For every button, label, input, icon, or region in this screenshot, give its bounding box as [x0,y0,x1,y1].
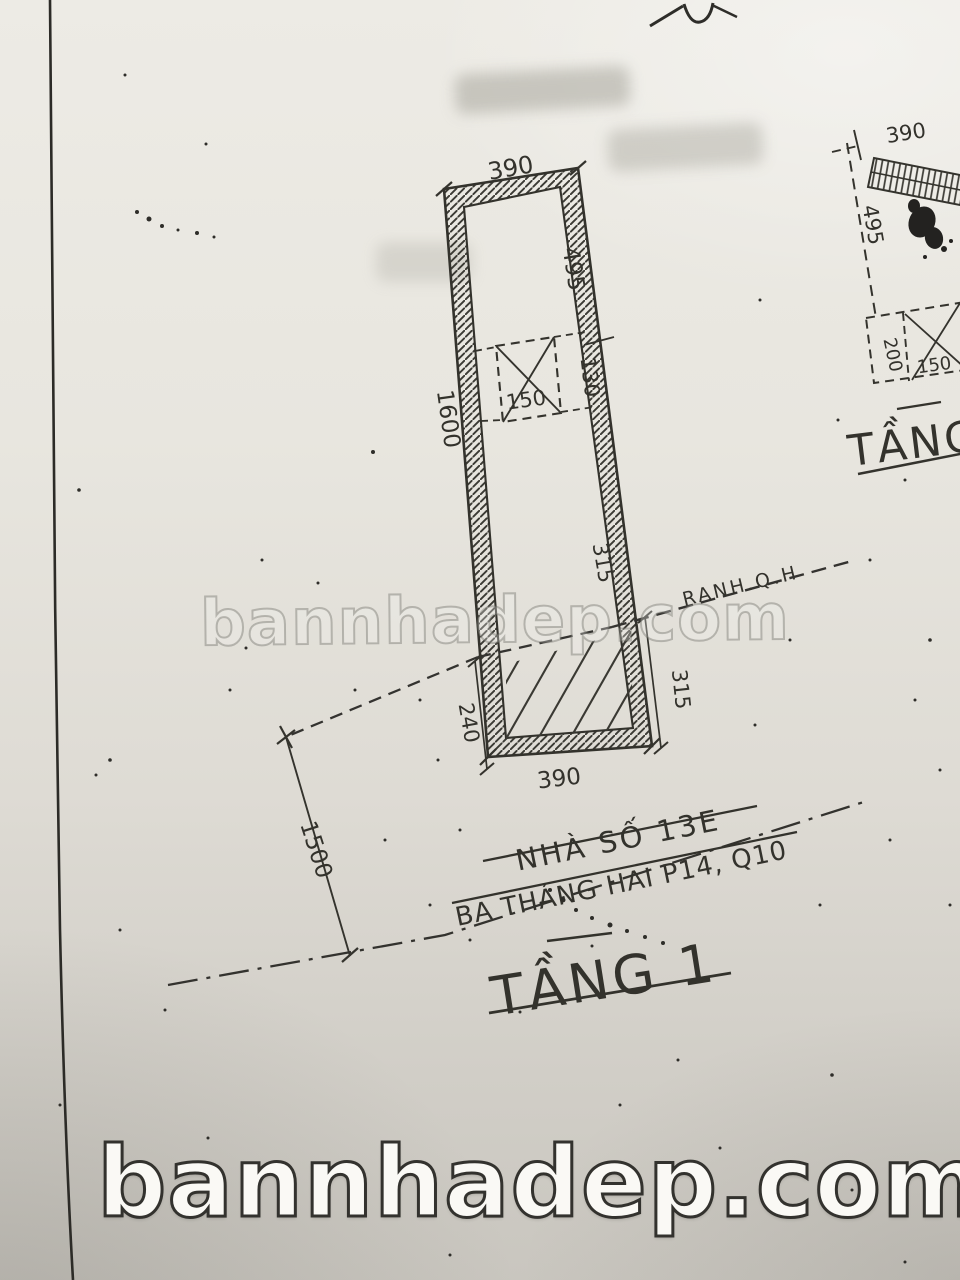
speckle [759,299,762,302]
speckle [869,559,872,562]
speckle [177,229,180,232]
floor2-dim-void: 150 [916,353,953,379]
dim-setback: 1500 [294,818,337,882]
speckle [59,1104,62,1107]
speckle [108,758,112,762]
speckle [561,898,566,903]
speckle [459,829,462,832]
floor2-plan: 390 495 200 150 TẦNG [832,118,960,477]
speckle [643,935,647,939]
speckle [469,939,472,942]
speckle [904,479,907,482]
ink-blob [903,199,953,259]
speckle [164,1009,167,1012]
speckle [519,1011,522,1014]
speckle [928,638,932,642]
speckle [591,945,594,948]
watermark-center: bannhadep.com [200,581,791,661]
speckle [147,217,152,222]
dim-right-lower: 315 [667,668,695,710]
speckle [548,888,552,892]
speckle [195,231,199,235]
top-edge-symbol [650,3,737,26]
speckle [619,1104,622,1107]
speckle [449,1254,452,1257]
speckle [371,450,375,454]
speckle [95,774,98,777]
speckle [574,908,578,912]
speckle [384,839,387,842]
speckle [213,236,216,239]
speckle [819,904,822,907]
speckle [661,941,665,945]
speckle [904,1261,907,1264]
toner-speckles [59,74,952,1264]
scanned-floor-plan-photo: 390 495 1600 150 130 315 315 240 390 150… [0,0,960,1280]
dim-void-width: 150 [505,385,548,414]
speckle [889,839,892,842]
speckle [914,699,917,702]
speckle [124,74,127,77]
speckle [429,904,432,907]
speckle [677,1059,680,1062]
floor2-dim-top: 390 [884,118,927,148]
speckle [229,689,232,692]
speckle [830,1073,834,1077]
speckle [419,699,422,702]
speckle [119,929,122,932]
speckle [837,419,840,422]
speckle [205,143,208,146]
speckle [135,210,139,214]
speckle [77,488,81,492]
floor2-dim-cell: 200 [879,336,907,374]
speckle [354,689,357,692]
speckle [317,582,320,585]
speckle [590,916,594,920]
speckle [540,902,543,905]
watermark-bottom: bannhadep.com [97,1126,960,1239]
speckle [160,224,164,228]
dim-bottom-width: 390 [536,763,583,794]
dim-right-upper: 495 [557,245,590,292]
speckle [261,559,264,562]
speckle [754,724,757,727]
page-fold-line [50,0,73,1280]
speckle [608,923,613,928]
dim-void-height: 130 [576,356,605,399]
speckle [625,929,629,933]
floor2-title: TẦNG [844,406,960,477]
speckle [949,904,952,907]
speckle [939,769,942,772]
speckle [437,759,440,762]
